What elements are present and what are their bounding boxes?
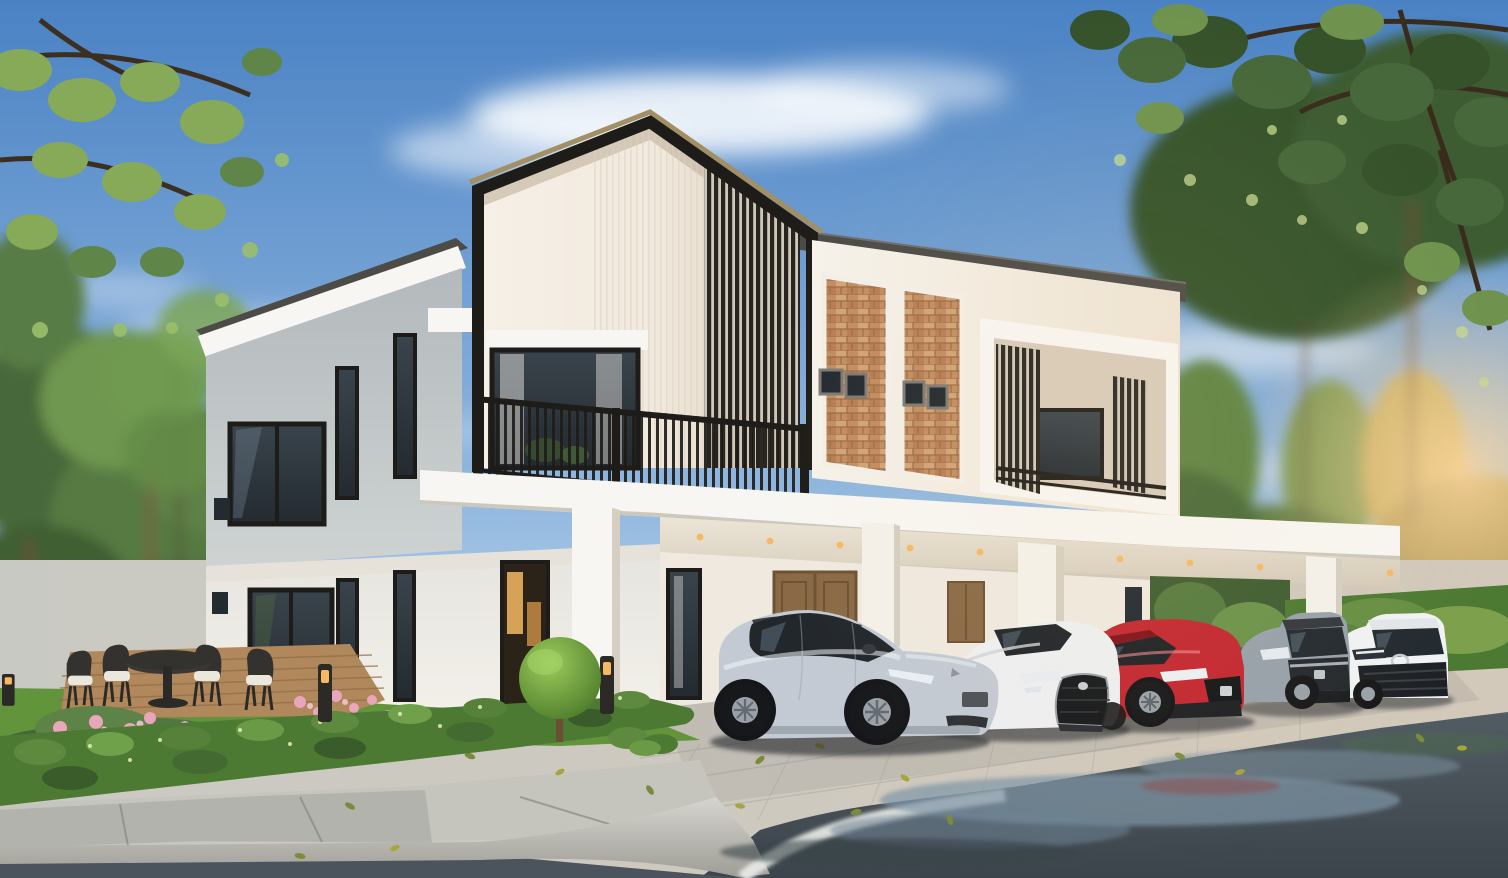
window-upper-small <box>214 498 230 520</box>
warm-light-wash <box>754 0 1508 878</box>
window-upper-2 <box>337 368 357 498</box>
window-lower-2 <box>395 572 414 700</box>
window-upper-3 <box>395 335 415 477</box>
scene-canvas <box>0 0 1508 878</box>
carport-window-tall <box>668 570 700 698</box>
bollard-light <box>600 656 614 714</box>
balcony-lintel <box>486 330 648 350</box>
bollard-light <box>2 674 15 706</box>
window-lower-small <box>212 592 228 614</box>
bollard-light <box>318 664 332 722</box>
gable-ledge <box>428 308 478 332</box>
render-viewport <box>0 0 1508 878</box>
